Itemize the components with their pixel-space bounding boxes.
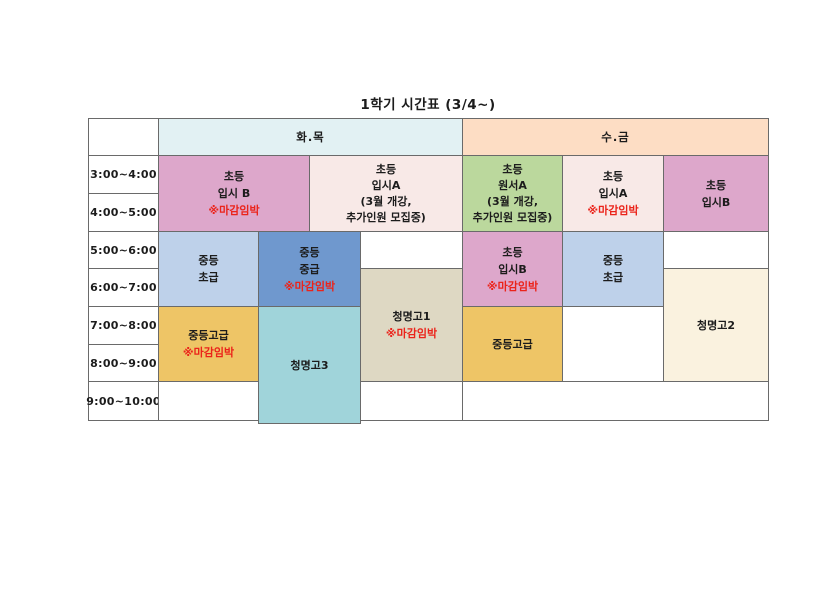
deadline-alert: ※마감임박 bbox=[183, 344, 234, 361]
cell-wedfri-elem-exam-a: 초등 입시A ※마감임박 bbox=[562, 155, 664, 232]
cell-tuethu-empty-5-6 bbox=[360, 231, 463, 269]
cell-tuethu-elem-exam-a: 초등 입시A (3월 개강, 추가인원 모집중) bbox=[309, 155, 463, 232]
header-tue-thu-label: 화.목 bbox=[296, 129, 325, 146]
class-label: 초등 원서A (3월 개강, 추가인원 모집중) bbox=[473, 162, 553, 226]
corner-cell bbox=[88, 118, 159, 156]
cell-tuethu-cheongmyeong3: 청명고3 bbox=[258, 306, 361, 424]
time-label: 4:00~5:00 bbox=[90, 204, 157, 221]
cell-wedfri-mid-beginner: 중등 초급 bbox=[562, 231, 664, 307]
class-label: 청명고3 bbox=[290, 357, 328, 374]
cell-tuethu-mid-advanced: 중등고급 ※마감임박 bbox=[158, 306, 259, 382]
deadline-alert: ※마감임박 bbox=[284, 278, 335, 295]
time-slot-4-5: 4:00~5:00 bbox=[88, 193, 159, 232]
class-label: 초등 입시B bbox=[702, 177, 731, 211]
class-label: 중등 초급 bbox=[603, 252, 623, 286]
class-label: 초등 입시A bbox=[599, 168, 628, 202]
class-label: 청명고1 bbox=[392, 308, 430, 325]
time-slot-3-4: 3:00~4:00 bbox=[88, 155, 159, 194]
time-slot-8-9: 8:00~9:00 bbox=[88, 344, 159, 382]
time-label: 8:00~9:00 bbox=[90, 355, 157, 372]
time-slot-6-7: 6:00~7:00 bbox=[88, 268, 159, 307]
time-slot-5-6: 5:00~6:00 bbox=[88, 231, 159, 269]
cell-tuethu-mid-beginner: 중등 초급 bbox=[158, 231, 259, 307]
class-label: 초등 입시B bbox=[498, 244, 527, 278]
timetable-grid: 화.목 수.금 3:00~4:00 4:00~5:00 5:00~6:00 6:… bbox=[88, 118, 769, 421]
cell-wedfri-cheongmyeong2: 청명고2 bbox=[663, 268, 769, 382]
header-wed-fri-label: 수.금 bbox=[601, 129, 630, 146]
cell-wedfri-empty-5-6 bbox=[663, 231, 769, 269]
time-label: 5:00~6:00 bbox=[90, 242, 157, 259]
cell-tuethu-mid-intermediate: 중등 중급 ※마감임박 bbox=[258, 231, 361, 307]
time-slot-7-8: 7:00~8:00 bbox=[88, 306, 159, 345]
time-label: 3:00~4:00 bbox=[90, 166, 157, 183]
class-label: 초등 입시A (3월 개강, 추가인원 모집중) bbox=[346, 162, 426, 226]
cell-tuethu-elem-exam-b: 초등 입시 B ※마감임박 bbox=[158, 155, 310, 232]
deadline-alert: ※마감임박 bbox=[208, 202, 259, 219]
cell-wedfri-empty-7-9 bbox=[562, 306, 664, 382]
cell-tuethu-empty-9-10-right bbox=[360, 381, 463, 421]
deadline-alert: ※마감임박 bbox=[587, 202, 638, 219]
deadline-alert: ※마감임박 bbox=[386, 325, 437, 342]
class-label: 중등고급 bbox=[492, 336, 532, 353]
deadline-alert: ※마감임박 bbox=[487, 278, 538, 295]
class-label: 중등 초급 bbox=[198, 252, 218, 286]
cell-wedfri-empty-9-10 bbox=[462, 381, 769, 421]
page-title: 1학기 시간표 (3/4~) bbox=[88, 93, 768, 113]
cell-wedfri-elem-wonseo-a: 초등 원서A (3월 개강, 추가인원 모집중) bbox=[462, 155, 563, 232]
cell-wedfri-elem-exam-b-top: 초등 입시B bbox=[663, 155, 769, 232]
class-label: 초등 입시 B bbox=[218, 168, 250, 202]
header-wed-fri: 수.금 bbox=[462, 118, 769, 156]
cell-wedfri-mid-advanced: 중등고급 bbox=[462, 306, 563, 382]
class-label: 중등 중급 bbox=[299, 244, 319, 278]
cell-tuethu-empty-9-10-left bbox=[158, 381, 259, 421]
class-label: 청명고2 bbox=[697, 317, 735, 334]
time-label: 6:00~7:00 bbox=[90, 279, 157, 296]
cell-tuethu-cheongmyeong1: 청명고1 ※마감임박 bbox=[360, 268, 463, 382]
header-tue-thu: 화.목 bbox=[158, 118, 463, 156]
cell-wedfri-elem-exam-b: 초등 입시B ※마감임박 bbox=[462, 231, 563, 307]
time-label: 7:00~8:00 bbox=[90, 317, 157, 334]
timetable-page: 1학기 시간표 (3/4~) 화.목 수.금 3:00~4:00 4:00~5:… bbox=[0, 0, 835, 590]
time-slot-9-10: 9:00~10:00 bbox=[88, 381, 159, 421]
class-label: 중등고급 bbox=[188, 327, 228, 344]
time-label: 9:00~10:00 bbox=[86, 393, 161, 410]
